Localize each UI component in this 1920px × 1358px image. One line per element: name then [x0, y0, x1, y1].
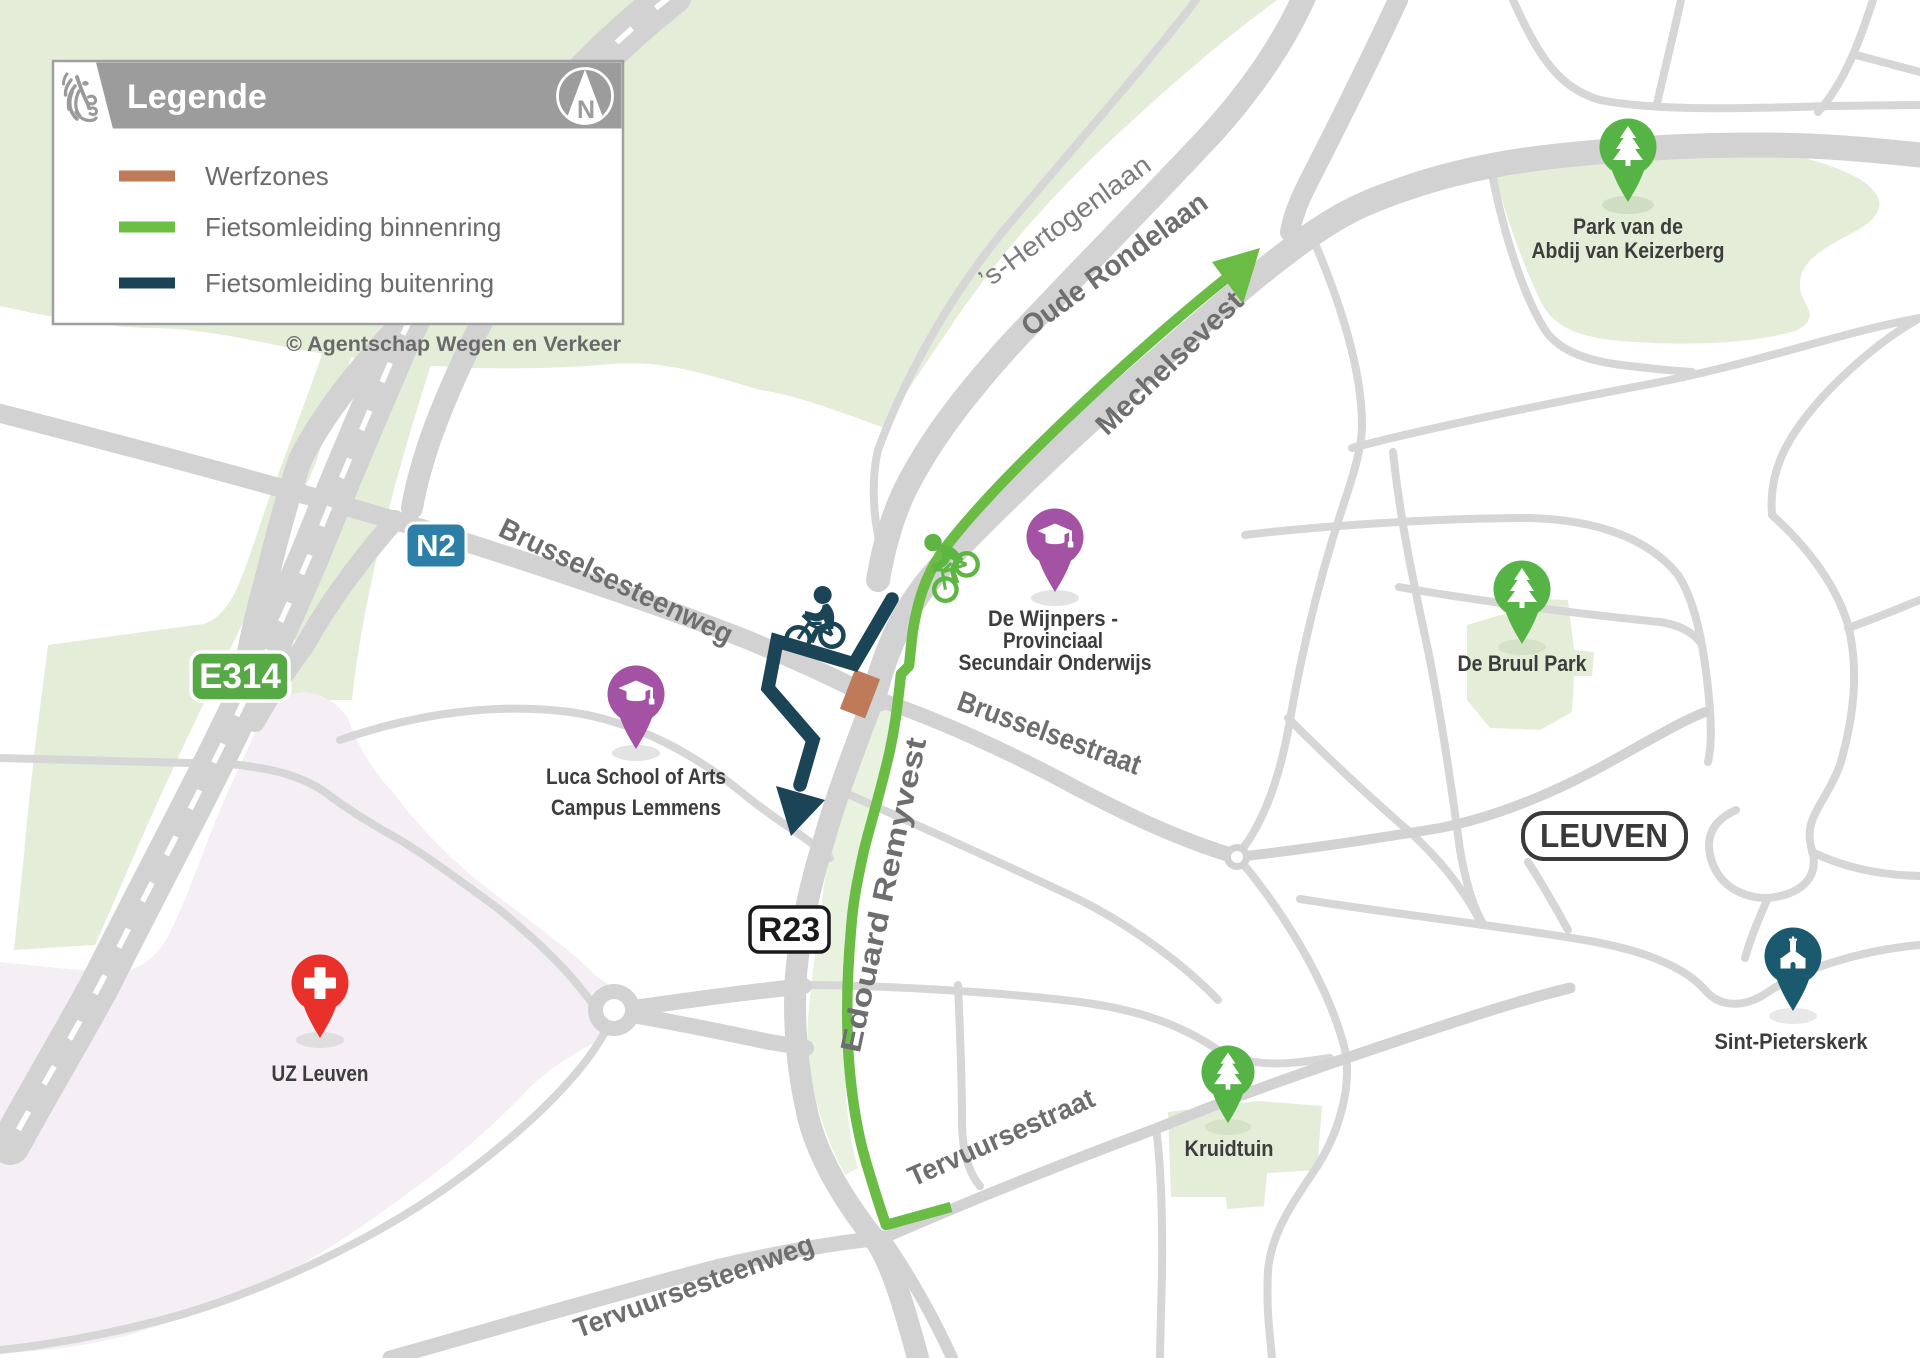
svg-text:Park van de: Park van de — [1573, 214, 1683, 239]
svg-text:Fietsomleiding buitenring: Fietsomleiding buitenring — [205, 268, 494, 298]
svg-text:E314: E314 — [199, 657, 281, 696]
svg-text:Kruidtuin: Kruidtuin — [1185, 1136, 1274, 1161]
svg-text:Werfzones: Werfzones — [205, 161, 329, 191]
svg-text:R23: R23 — [758, 911, 820, 949]
svg-text:Sint-Pieterskerk: Sint-Pieterskerk — [1715, 1029, 1868, 1054]
svg-text:Abdij van Keizerberg: Abdij van Keizerberg — [1532, 238, 1725, 263]
svg-text:N: N — [577, 96, 595, 124]
svg-text:N2: N2 — [416, 528, 456, 563]
svg-text:Campus Lemmens: Campus Lemmens — [551, 795, 721, 820]
svg-text:© Agentschap Wegen en Verkeer: © Agentschap Wegen en Verkeer — [286, 332, 622, 356]
svg-text:Secundair Onderwijs: Secundair Onderwijs — [959, 650, 1152, 675]
svg-text:Fietsomleiding binnenring: Fietsomleiding binnenring — [205, 212, 501, 242]
svg-text:Luca School of Arts: Luca School of Arts — [546, 764, 726, 789]
svg-text:UZ Leuven: UZ Leuven — [272, 1061, 369, 1086]
svg-text:LEUVEN: LEUVEN — [1540, 817, 1668, 854]
svg-text:Legende: Legende — [127, 78, 267, 116]
svg-text:De Bruul Park: De Bruul Park — [1458, 651, 1587, 676]
